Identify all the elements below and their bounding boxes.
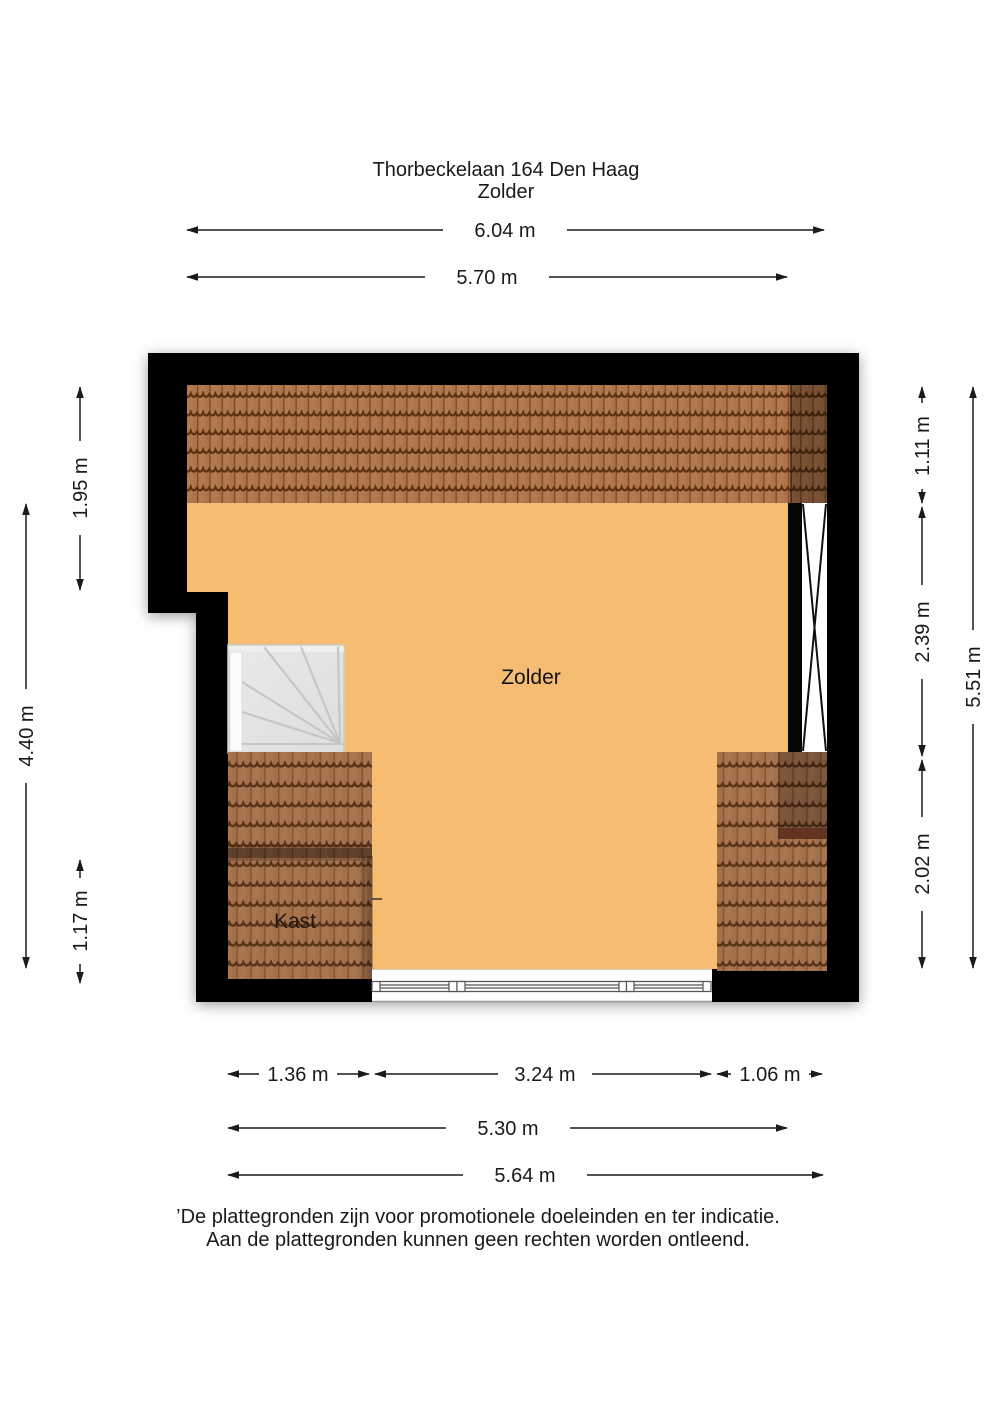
svg-text:3.24 m: 3.24 m	[514, 1064, 575, 1086]
svg-text:1.11 m: 1.11 m	[912, 416, 934, 476]
svg-text:5.64 m: 5.64 m	[494, 1165, 555, 1187]
svg-text:’De plattegronden zijn voor pr: ’De plattegronden zijn voor promotionele…	[176, 1206, 780, 1228]
svg-text:5.70 m: 5.70 m	[456, 267, 517, 289]
svg-text:6.04 m: 6.04 m	[474, 220, 535, 242]
svg-text:Aan de plattegronden kunnen ge: Aan de plattegronden kunnen geen rechten…	[206, 1229, 750, 1251]
svg-text:2.39 m: 2.39 m	[912, 601, 934, 662]
svg-text:4.40 m: 4.40 m	[16, 705, 38, 766]
svg-text:5.51 m: 5.51 m	[963, 646, 985, 707]
svg-text:Zolder: Zolder	[478, 181, 535, 203]
svg-text:2.02 m: 2.02 m	[912, 833, 934, 894]
svg-text:Kast: Kast	[274, 910, 316, 933]
svg-text:5.30 m: 5.30 m	[477, 1118, 538, 1140]
svg-text:1.95 m: 1.95 m	[70, 457, 92, 518]
svg-text:1.17 m: 1.17 m	[70, 890, 92, 951]
svg-text:1.06 m: 1.06 m	[739, 1064, 800, 1086]
svg-text:Thorbeckelaan 164 Den Haag: Thorbeckelaan 164 Den Haag	[373, 159, 640, 181]
svg-text:Zolder: Zolder	[501, 666, 561, 689]
svg-text:1.36 m: 1.36 m	[267, 1064, 328, 1086]
